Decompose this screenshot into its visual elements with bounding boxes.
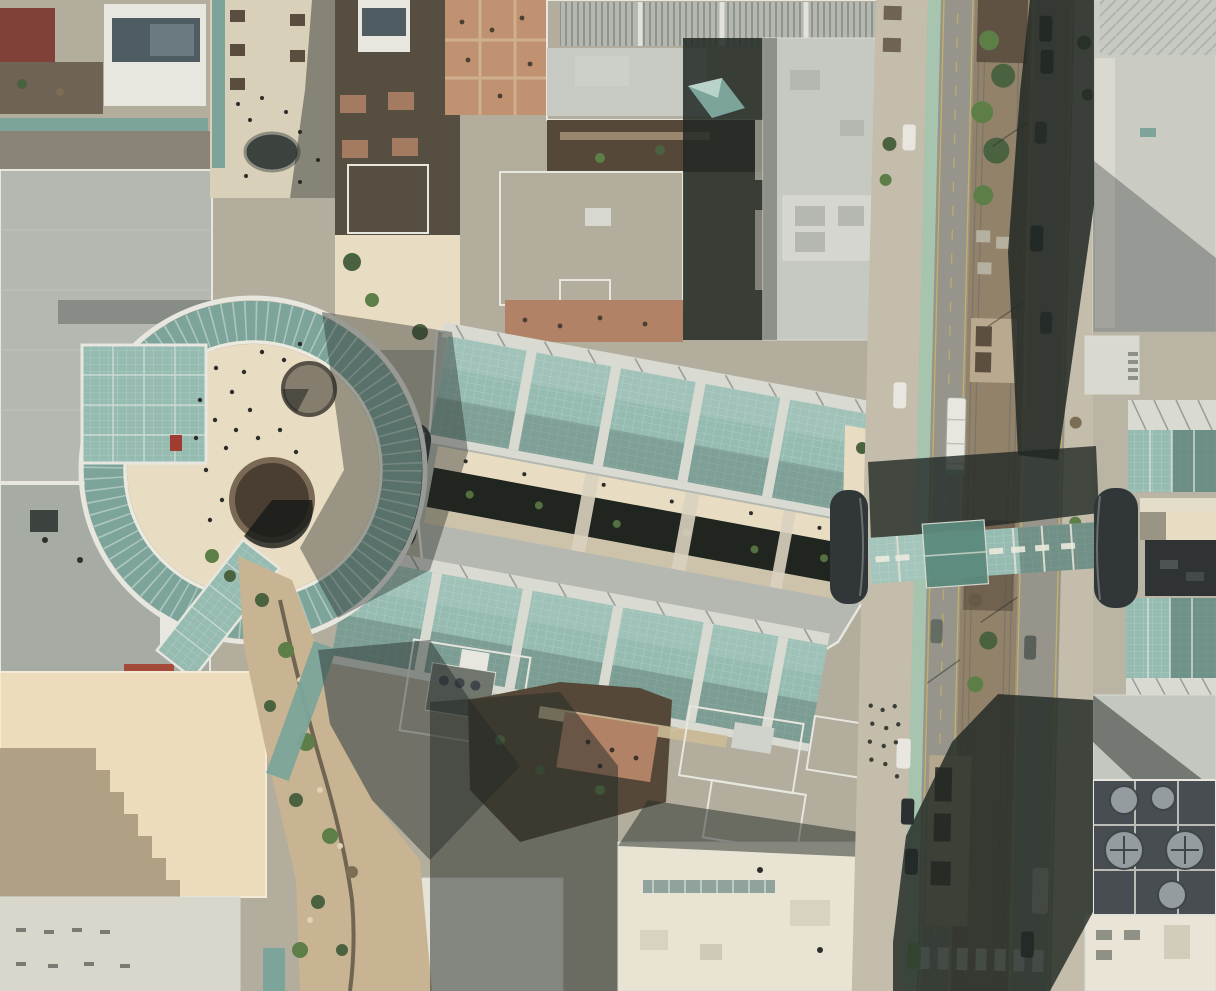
roof-vent	[42, 537, 48, 543]
planter	[290, 14, 305, 26]
brick-terrace	[505, 300, 683, 342]
textured-roof-band	[1100, 0, 1216, 55]
roof-unit	[840, 120, 864, 136]
walkway-band	[1140, 498, 1216, 512]
tree	[343, 253, 361, 271]
northeast-roof	[1093, 0, 1216, 332]
planter-cube	[996, 237, 1010, 249]
tree	[205, 549, 219, 563]
shrub	[655, 145, 665, 155]
roof-unit	[640, 930, 668, 950]
sidewalk-planter	[883, 38, 901, 52]
roof-unit	[790, 70, 820, 90]
tree	[17, 79, 27, 89]
roof-garden-speckled	[0, 62, 103, 114]
planter	[290, 50, 305, 62]
skylight	[1140, 128, 1156, 137]
shaded-walkway	[0, 131, 210, 171]
northwest-roof-cluster	[0, 5, 210, 171]
shaded-court-west-center	[335, 0, 460, 350]
aerial-imagery	[0, 0, 1216, 991]
brick-planter	[342, 140, 368, 158]
roof-unit	[790, 900, 830, 926]
tree	[224, 570, 236, 582]
roof-panel	[150, 24, 194, 56]
shrub	[595, 153, 605, 163]
walkway-shade	[1140, 512, 1166, 540]
brick-planter	[340, 95, 366, 113]
roof-vent	[77, 557, 83, 563]
shaded-court	[1145, 540, 1216, 596]
planter-cube	[977, 262, 991, 274]
planter	[230, 44, 245, 56]
planter	[230, 78, 245, 90]
glass-canopy	[0, 118, 208, 131]
glass-canopy-strip	[212, 0, 225, 168]
lower-white-roof	[0, 897, 240, 991]
roof-unit	[700, 944, 722, 960]
truss-frame	[1128, 400, 1216, 430]
roof-hut	[585, 208, 611, 226]
sidewalk-planter	[883, 6, 901, 20]
satellite-view	[0, 0, 1216, 991]
solar-panel-roof	[362, 8, 406, 36]
small-roof	[1085, 336, 1139, 394]
tree	[365, 293, 379, 307]
glass-canopy-strip	[263, 948, 285, 991]
penthouse	[838, 206, 864, 226]
southeast-block	[1085, 695, 1216, 991]
glass-shade	[1170, 598, 1216, 678]
mall-fountain	[245, 133, 299, 171]
skylight-strip	[643, 880, 775, 893]
roof-unit	[1164, 925, 1190, 959]
cream-roof	[618, 842, 882, 991]
penthouse	[795, 206, 825, 226]
bridge-glass-shaded	[1018, 522, 1103, 574]
bottom-alley-shadow	[430, 692, 618, 991]
pedestrian-mall	[210, 0, 338, 198]
car-in-shade	[1160, 560, 1178, 569]
car-in-shade	[1186, 572, 1204, 581]
station-shelter	[975, 352, 991, 372]
red-kiosk	[170, 435, 182, 451]
station-shelter	[976, 326, 992, 346]
tree	[56, 88, 64, 96]
barrel-vault-bridge-east	[1094, 488, 1138, 608]
roof-edge-shade	[763, 38, 777, 340]
maroon-roof	[0, 8, 55, 62]
terracotta-terrace	[445, 0, 547, 115]
roof-unit	[30, 510, 58, 532]
planter	[230, 10, 245, 22]
brick-planter	[392, 138, 418, 156]
penthouse	[795, 232, 825, 252]
penthouse	[575, 56, 629, 86]
brick-planter	[388, 92, 414, 110]
planter-cube	[976, 230, 990, 242]
